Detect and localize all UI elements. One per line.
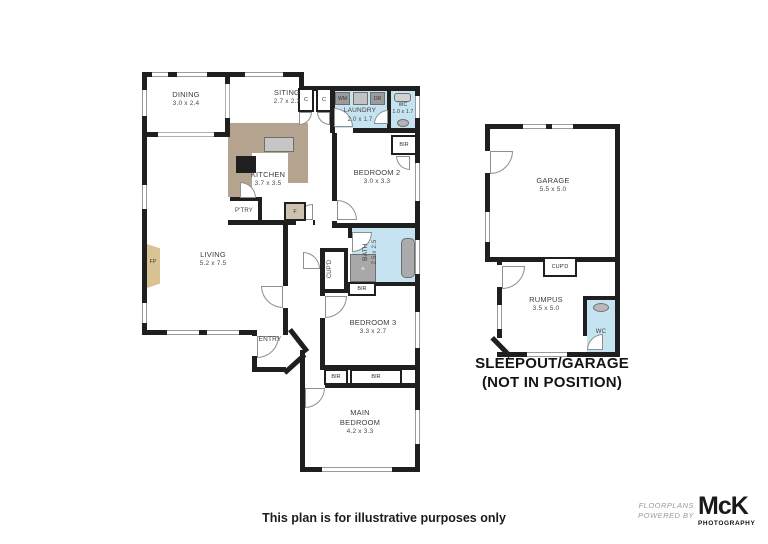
room-name: GARAGE [520, 176, 586, 186]
window [167, 330, 199, 335]
room-dims: 3.3 x 2.7 [340, 328, 406, 337]
window [152, 72, 168, 77]
logo-tagline-line2: POWERED BY [630, 511, 694, 520]
room-dims: 2.7 x 2.3 [258, 98, 316, 107]
room-name: DINING [158, 90, 214, 100]
room-label-entry: ENTRY [253, 336, 287, 345]
window [322, 467, 392, 472]
closet-box: C [316, 88, 332, 112]
room-dims: 5.2 x 7.5 [180, 260, 246, 269]
wall [300, 350, 305, 472]
room-name: SITING [258, 88, 316, 98]
window [245, 72, 283, 77]
toilet-bowl [397, 119, 409, 127]
window [142, 185, 147, 209]
room-dims: 3.0 x 2.4 [158, 100, 214, 109]
door-arc [305, 388, 325, 408]
door-opening [335, 128, 353, 133]
fireplace-label: FP [146, 259, 160, 266]
bathtub [401, 238, 415, 278]
window [415, 240, 420, 274]
door-arc [261, 286, 283, 308]
room-dims: 1.0 x 1.7 [391, 109, 415, 116]
room-label-pantry: P'TRY [230, 207, 258, 215]
logo-brand: McK [698, 492, 748, 521]
room-label-garage: GARAGE 5.5 x 5.0 [520, 176, 586, 195]
wall [258, 197, 262, 224]
door-opening [283, 286, 288, 308]
window [142, 90, 147, 116]
cupboard-label-house: CUP'D [327, 249, 337, 289]
room-dims: 5.5 x 5.0 [520, 186, 586, 195]
kitchen-sink [264, 137, 294, 152]
window [497, 305, 502, 329]
window [177, 72, 207, 77]
room-label-bedroom2: BEDROOM 2 3.0 x 3.3 [345, 168, 409, 187]
built-in-robe-box: BIR [391, 135, 417, 155]
dryer-label: DR [374, 96, 381, 102]
room-label-rumpus: RUMPUS 3.5 x 5.0 [513, 295, 579, 314]
bir-label: BIR [371, 374, 380, 380]
room-name: KITCHEN [240, 170, 296, 180]
room-dims: 3.7 x 3.5 [240, 180, 296, 189]
sleepout-note: SLEEPOUT/GARAGE (NOT IN POSITION) [442, 355, 662, 393]
sleepout-note-line1: SLEEPOUT/GARAGE [442, 355, 662, 374]
logo-brand-sub: PHOTOGRAPHY [698, 520, 755, 527]
logo-tagline-line1: FLOORPLANS [630, 501, 694, 510]
room-name: LIVING [180, 250, 246, 260]
fixture-label: FP [146, 259, 160, 266]
room-dims: 2.0 x 1.7 [333, 116, 387, 124]
bir-label: BIR [331, 374, 340, 380]
washing-machine: WM [335, 92, 350, 105]
bir-label: BIR [399, 142, 408, 148]
toilet-cistern [593, 303, 609, 312]
fridge-label: F [293, 209, 296, 215]
door-arc [325, 296, 347, 318]
fixture-label: CUP'D [327, 260, 333, 278]
door-arc [337, 200, 357, 220]
door-arc [317, 112, 330, 125]
cupboard-label: CUP'D [552, 264, 569, 270]
wall [283, 220, 288, 335]
room-label-siting: SITING 2.7 x 2.3 [258, 88, 316, 107]
room-dims: 3.5 x 5.0 [513, 305, 579, 314]
room-label-bedroom3: BEDROOM 3 3.3 x 2.7 [340, 318, 406, 337]
toilet-cistern [394, 93, 411, 102]
built-in-robe-box: BIR [350, 369, 402, 385]
room-name: BEDROOM 3 [340, 318, 406, 328]
closet-label: C [322, 97, 326, 103]
dryer: DR [370, 92, 385, 105]
room-name: WC [391, 102, 415, 109]
room-name: P'TRY [230, 207, 258, 215]
room-label-laundry: LAUNDRY 2.0 x 1.7 [333, 107, 387, 124]
floor-plan: C C WM DR BIR F + BIR BIR BIR CUP'D DINI… [0, 0, 768, 544]
bir-label: BIR [357, 286, 366, 292]
fridge-box: F [284, 202, 306, 221]
room-name: MAIN BEDROOM [330, 408, 390, 428]
cupboard-box: CUP'D [543, 257, 577, 277]
photography-logo: FLOORPLANS POWERED BY McK PHOTOGRAPHY [630, 494, 762, 540]
wall [615, 124, 620, 357]
cased-opening [158, 132, 214, 137]
window [415, 312, 420, 348]
room-dims: 3.0 x 3.3 [345, 178, 409, 187]
room-name: BEDROOM 2 [345, 168, 409, 178]
window [415, 410, 420, 444]
room-label-sleepout-wc: WC [588, 328, 614, 336]
laundry-trough [353, 92, 368, 105]
room-name: BATH [362, 224, 371, 280]
wall [583, 296, 617, 300]
window-mullion [546, 124, 552, 129]
room-name: LAUNDRY [333, 107, 387, 116]
room-name: ENTRY [253, 336, 287, 345]
washing-machine-label: WM [338, 96, 347, 102]
room-label-dining: DINING 3.0 x 2.4 [158, 90, 214, 109]
built-in-robe-box: BIR [324, 369, 348, 385]
room-label-living: LIVING 5.2 x 7.5 [180, 250, 246, 269]
window [485, 212, 490, 242]
cased-opening [225, 84, 230, 118]
door-arc [303, 252, 320, 269]
sleepout-note-line2: (NOT IN POSITION) [442, 374, 662, 393]
room-label-main-bedroom: MAIN BEDROOM 4.2 x 3.3 [330, 408, 390, 437]
room-label-kitchen: KITCHEN 3.7 x 3.5 [240, 170, 296, 189]
room-label-bath: BATH 2.5 x 2.5 [362, 224, 378, 280]
wall [252, 367, 286, 372]
window [415, 163, 420, 201]
fireplace [147, 244, 160, 288]
built-in-robe-box: BIR [348, 282, 376, 296]
door-arc [490, 151, 513, 174]
room-name: WC [588, 328, 614, 336]
wall-diagonal [288, 328, 309, 353]
window [142, 303, 147, 323]
window [415, 96, 420, 118]
door-arc [299, 112, 312, 125]
room-label-wc: WC 1.0 x 1.7 [391, 102, 415, 116]
door-arc [502, 266, 525, 289]
room-dims: 2.5 x 2.5 [371, 224, 379, 280]
window [207, 330, 239, 335]
room-name: RUMPUS [513, 295, 579, 305]
room-dims: 4.2 x 3.3 [330, 428, 390, 437]
